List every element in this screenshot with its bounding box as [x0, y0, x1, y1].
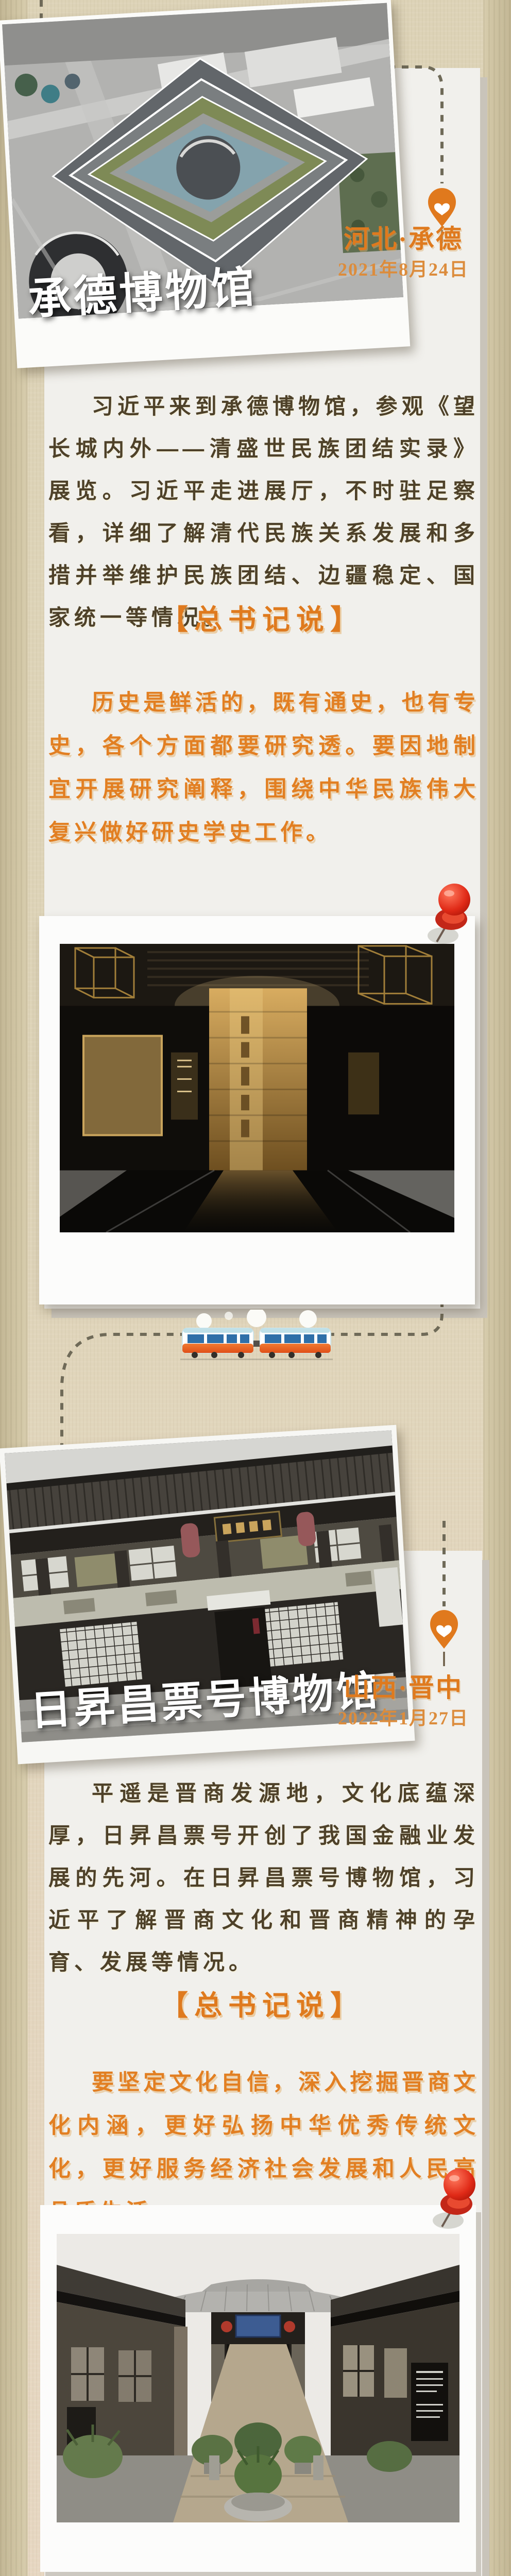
visit-date: 2022年1月27日 [323, 1703, 483, 1730]
quote-section-heading: 【总书记说】 [44, 1982, 480, 2023]
polaroid-chengde-aerial: 承德博物馆 [0, 0, 410, 368]
polaroid-rishengchang-courtyard [40, 2205, 476, 2572]
visit-paragraph: 平遥是晋商发源地，文化底蕴深厚，日昇昌票号开创了我国金融业发展的先河。在日昇昌票… [48, 1772, 479, 1984]
red-pushpin-icon [427, 2163, 488, 2240]
location-label: 河北·承德 [323, 218, 483, 256]
quote-section-heading: 【总书记说】 [44, 597, 480, 637]
leader-quote: 历史是鲜活的，既有通史，也有专史，各个方面都要研究透。要因地制宜开展研究阐释，围… [48, 682, 479, 855]
paper-edge-left [0, 0, 28, 2576]
polaroid-exhibition-hall [39, 916, 475, 1304]
train-icon [178, 1310, 335, 1361]
museum-poster-page: 承德博物馆 河北·承德 2021年8月24日 习近平来到承德博物馆，参观《望长城… [0, 0, 511, 2576]
location-label: 山西·晋中 [323, 1667, 483, 1704]
rishengchang-courtyard-photo [57, 2234, 459, 2522]
exhibition-hall-interior-photo [60, 944, 454, 1232]
visit-date: 2021年8月24日 [323, 255, 483, 281]
museum-title-calligraphy: 承德博物馆 [26, 252, 258, 328]
red-pushpin-icon [421, 878, 483, 955]
